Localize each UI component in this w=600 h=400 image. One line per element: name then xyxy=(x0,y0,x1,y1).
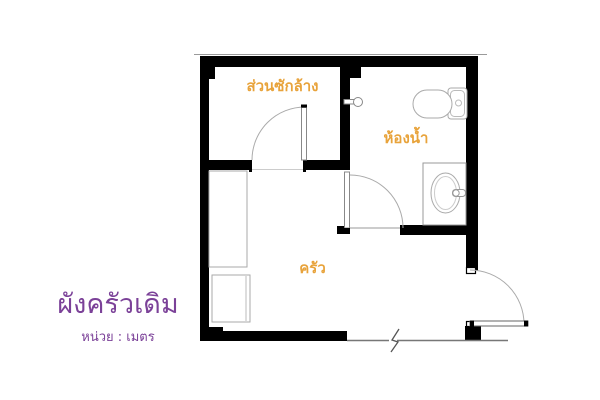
kitchen-counter xyxy=(209,171,247,267)
bathroom-door-swing-arc xyxy=(350,175,403,228)
wall-divider-right-segment xyxy=(303,160,350,170)
kitchen-fixtures xyxy=(209,171,250,322)
entry-door-leaf xyxy=(470,321,528,326)
entry-door-leaf-cap-right xyxy=(524,321,528,327)
bathroom-sink xyxy=(423,163,466,225)
wall-bathroom-bottom xyxy=(400,225,478,235)
entry-door-post xyxy=(465,326,481,341)
wall-right xyxy=(466,56,478,271)
toilet xyxy=(413,88,467,119)
bathroom-door-leaf-cap xyxy=(343,228,350,232)
bathroom-door-leaf xyxy=(345,172,350,228)
bathroom-door xyxy=(343,172,403,232)
plan-unit-label: หน่วย : เมตร xyxy=(25,330,211,346)
toilet-bowl xyxy=(413,90,452,118)
door-jamb-tick-left xyxy=(249,160,252,172)
entry-door-leaf-cap-left xyxy=(470,321,474,327)
floor-plan-canvas: ส่วนซักล้าง ห้องน้ำ ครัว ผังครัวเดิม หน่… xyxy=(0,0,600,400)
wall-junction-top xyxy=(340,56,361,78)
sink-faucet-knob xyxy=(453,190,459,196)
laundry-door-leaf xyxy=(302,108,307,161)
door-jamb-tick-right xyxy=(303,160,306,172)
laundry-door xyxy=(252,105,307,170)
shower-valve-head xyxy=(354,98,363,107)
shower-valve-stem xyxy=(344,100,354,105)
entry-door-swing-arc xyxy=(470,270,524,324)
laundry-door-swing-arc xyxy=(252,107,305,160)
wall-top xyxy=(200,56,478,67)
wall-divider-left-segment xyxy=(200,160,250,170)
appliance xyxy=(212,275,250,322)
toilet-flush-button xyxy=(456,100,462,106)
plan-title: ผังครัวเดิม xyxy=(25,289,211,321)
entry-door xyxy=(467,268,529,327)
open-boundary xyxy=(347,329,508,352)
laundry-door-leaf-cap xyxy=(301,105,307,108)
